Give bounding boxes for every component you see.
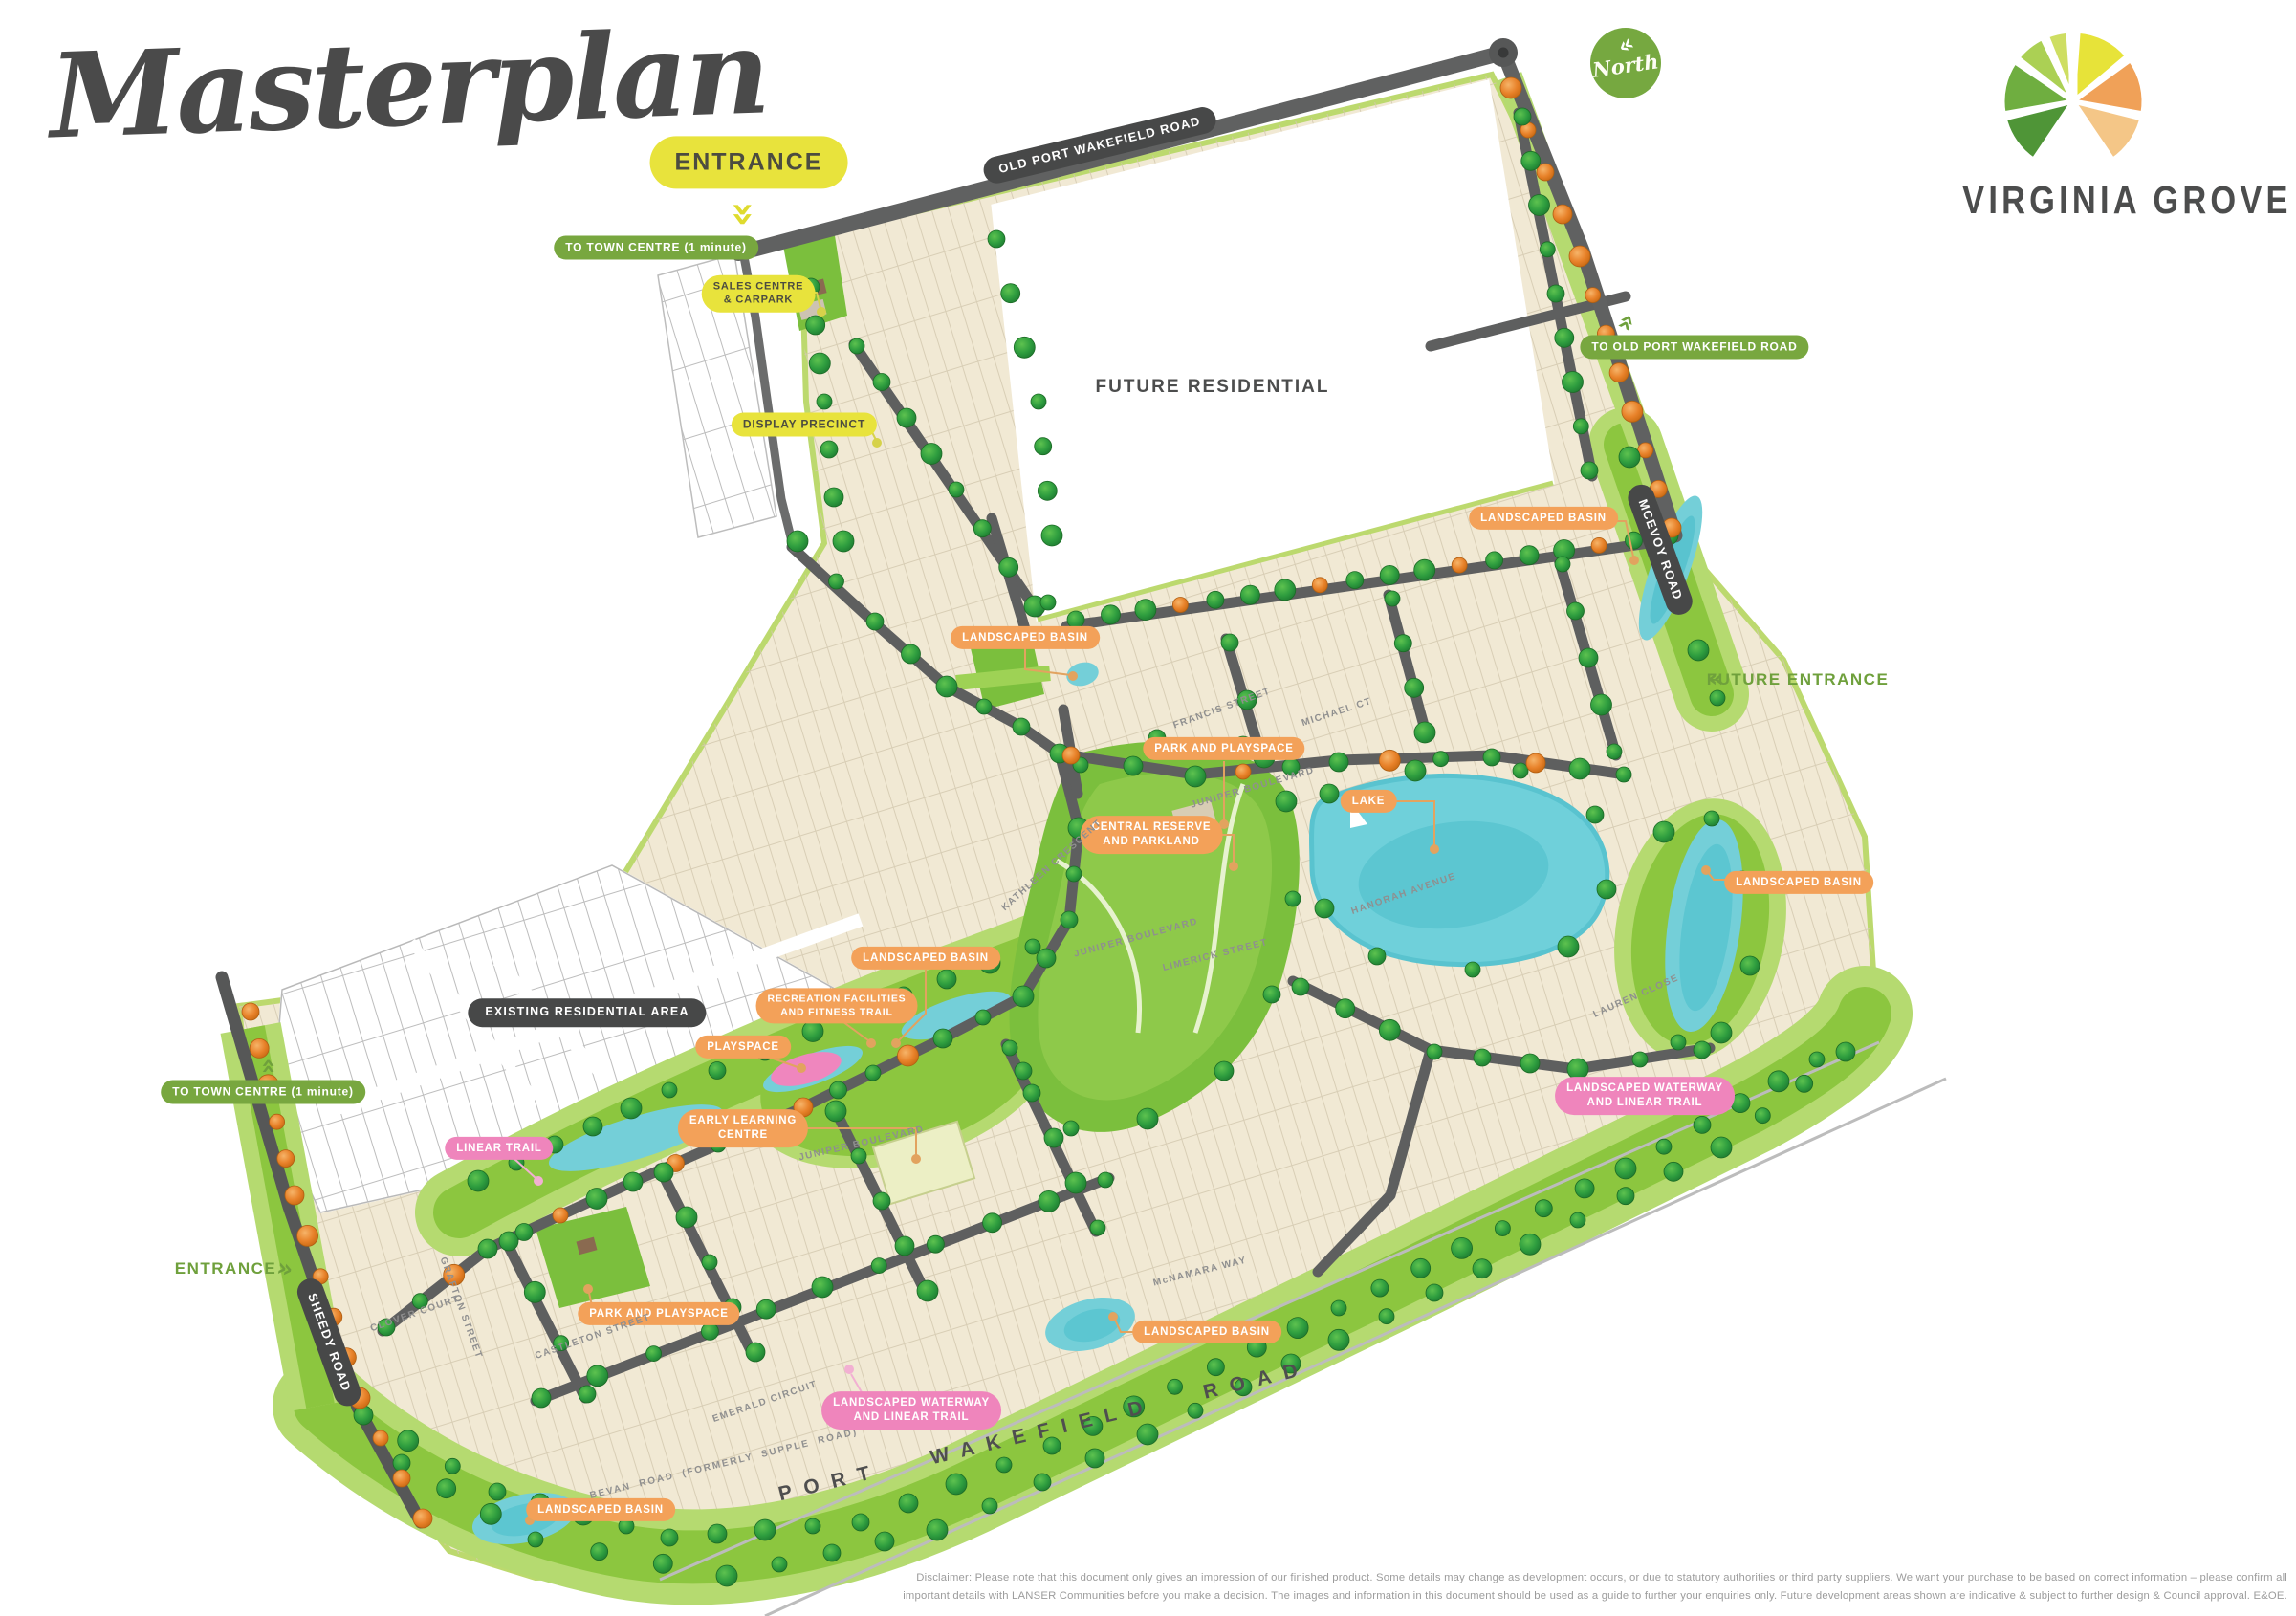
lake-badge: LAKE bbox=[1341, 790, 1397, 813]
sales-centre-badge: SALES CENTRE& CARPARK bbox=[702, 275, 816, 313]
landscaped-basin-badge-south: LANDSCAPED BASIN bbox=[1132, 1321, 1281, 1343]
central-reserve-badge: CENTRAL RESERVEAND PARKLAND bbox=[1081, 816, 1223, 854]
park-playspace-badge-north: PARK AND PLAYSPACE bbox=[1143, 737, 1304, 760]
disclaimer: Disclaimer: Please note that this docume… bbox=[820, 1569, 2287, 1605]
entrance-top-badge: ENTRANCE bbox=[650, 136, 848, 188]
landscaped-basin-badge-north: LANDSCAPED BASIN bbox=[951, 626, 1100, 649]
landscaped-waterway-badge-south: LANDSCAPED WATERWAYAND LINEAR TRAIL bbox=[821, 1391, 1001, 1430]
park-playspace-badge-southwest: PARK AND PLAYSPACE bbox=[578, 1302, 739, 1325]
to-old-port-wakefield-badge: TO OLD PORT WAKEFIELD ROAD bbox=[1580, 336, 1808, 360]
landscaped-basin-badge-mcevoy: LANDSCAPED BASIN bbox=[1469, 507, 1618, 530]
existing-residential-label: EXISTING RESIDENTIAL AREA bbox=[468, 998, 706, 1027]
town-centre-west-chevron-icon: « bbox=[256, 1059, 281, 1075]
north-indicator: « North bbox=[1590, 28, 1661, 98]
linear-trail-badge: LINEAR TRAIL bbox=[445, 1137, 553, 1160]
entrance-top-chevron-icon: » bbox=[724, 201, 764, 227]
disclaimer-line-2: important details with LANSER Communitie… bbox=[820, 1587, 2287, 1605]
future-entrance-label: FUTURE ENTRANCE bbox=[1707, 670, 1890, 689]
page-title: Masterplan bbox=[48, 8, 626, 165]
to-town-centre-top-badge: TO TOWN CENTRE (1 minute) bbox=[554, 236, 758, 260]
to-town-centre-west-badge: TO TOWN CENTRE (1 minute) bbox=[161, 1081, 365, 1104]
disclaimer-line-1: Disclaimer: Please note that this docume… bbox=[820, 1569, 2287, 1587]
early-learning-centre-badge: EARLY LEARNINGCENTRE bbox=[678, 1109, 808, 1147]
virginia-grove-logo-icon bbox=[2002, 25, 2144, 182]
entrance-west-label: ENTRANCE bbox=[175, 1259, 276, 1278]
landscaped-basin-badge-southwest: LANDSCAPED BASIN bbox=[526, 1498, 675, 1521]
brand-name: VIRGINIA GROVE bbox=[1962, 178, 2245, 223]
landscaped-basin-badge-east: LANDSCAPED BASIN bbox=[1724, 871, 1873, 894]
recreation-facilities-badge: RECREATION FACILITIESAND FITNESS TRAIL bbox=[756, 988, 918, 1023]
masterplan-poster: Masterplan VIRGINIA GROVE « North FUTURE… bbox=[0, 0, 2296, 1616]
future-residential-label: FUTURE RESIDENTIAL bbox=[1096, 377, 1330, 398]
playspace-badge: PLAYSPACE bbox=[695, 1036, 791, 1059]
display-precinct-badge: DISPLAY PRECINCT bbox=[732, 413, 877, 437]
landscaped-basin-badge-waterway: LANDSCAPED BASIN bbox=[851, 947, 1000, 970]
landscaped-waterway-badge-east: LANDSCAPED WATERWAYAND LINEAR TRAIL bbox=[1555, 1077, 1735, 1115]
